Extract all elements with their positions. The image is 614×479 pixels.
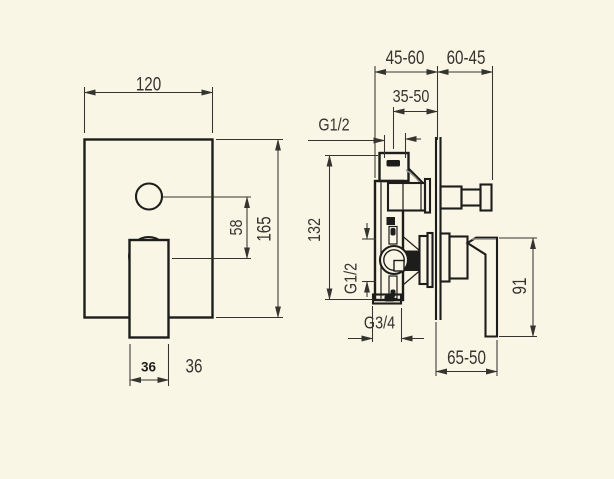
dim-36-label: 36 bbox=[141, 360, 157, 375]
dim-45-60-label: 45-60 bbox=[386, 46, 425, 68]
spout-housing bbox=[388, 183, 425, 211]
mixer-dimension-drawing: 120 165 58 36 36 bbox=[0, 0, 614, 479]
dim-132-label: 132 bbox=[305, 218, 325, 242]
upper-slot-pin bbox=[391, 228, 396, 236]
dim-65-50-label: 65-50 bbox=[447, 346, 486, 368]
lever-handle-front bbox=[130, 240, 169, 338]
mounting-plate-mid bbox=[420, 236, 428, 284]
top-port-detail bbox=[387, 160, 401, 167]
thread-g12-top-label: G1/2 bbox=[318, 115, 349, 135]
cartridge-notch bbox=[394, 261, 404, 272]
dim-60-45-label: 60-45 bbox=[447, 46, 486, 68]
dim-120-label: 120 bbox=[136, 73, 161, 95]
dim-35-50-label: 35-50 bbox=[393, 87, 430, 107]
thread-g12-inlet-label: G1/2 bbox=[341, 263, 361, 294]
dim-36-secondary-label: 36 bbox=[186, 355, 203, 377]
bottom-port-detail bbox=[385, 296, 395, 302]
dim-165-label: 165 bbox=[253, 216, 275, 241]
dim-91-label: 91 bbox=[508, 278, 530, 295]
thread-g34-label: G3/4 bbox=[364, 313, 395, 333]
body-detail-block bbox=[387, 217, 396, 225]
dim-58-label: 58 bbox=[227, 219, 247, 235]
